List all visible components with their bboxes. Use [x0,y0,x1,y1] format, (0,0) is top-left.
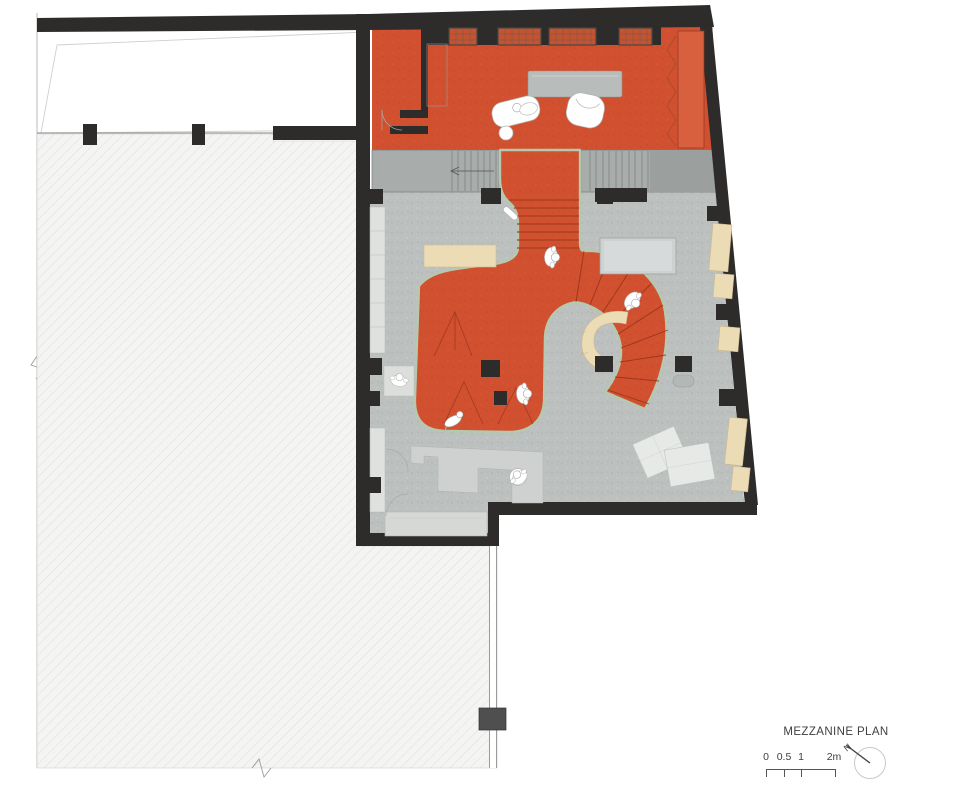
scale-label-0: 0 [763,751,769,763]
lot-top-wall [37,14,368,32]
stair-left [372,150,499,192]
north-arrow-icon: N [843,736,895,788]
stair-right [581,150,716,192]
wall-shelf-upper [370,207,385,353]
window-panel [619,28,652,45]
mezzanine-plan-drawing [0,0,960,789]
side-table [499,126,513,140]
window-panel [549,28,596,45]
scale-label-05: 0.5 [777,751,792,763]
window-panel [449,28,477,45]
skylight-outline [41,32,367,133]
north-label: N [843,742,853,754]
page-title: MEZZANINE PLAN [751,726,921,738]
window-panel [498,28,541,45]
scale-tick [766,769,767,777]
column-below-void [479,708,506,730]
wall-shelf-lower [370,428,385,512]
lounge-bench [528,71,622,97]
wardrobe [678,31,704,148]
pouf [673,375,694,387]
room-top-wall [368,5,714,30]
bottom-bench [385,512,487,536]
bottom-right-wall [497,502,757,515]
scale-tick [801,769,802,777]
floor-plan-page: MEZZANINE PLAN 0 0.5 1 2m N [0,0,960,789]
tilted-table-2 [664,442,715,486]
scale-label-2m: 2m [827,751,842,763]
left-wall [356,14,370,546]
wood-bench-left [424,245,496,267]
lot-cross-wall [273,126,368,140]
scale-label-1: 1 [798,751,804,763]
scale-tick [784,769,785,777]
scale-tick [835,769,836,777]
